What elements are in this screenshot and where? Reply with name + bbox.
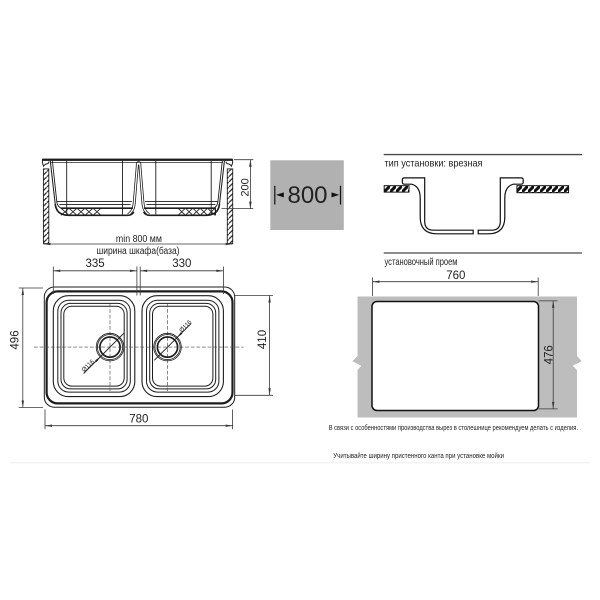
svg-text:Учитывайте ширину пристенного: Учитывайте ширину пристенного канта при … xyxy=(333,452,504,460)
svg-text:200: 200 xyxy=(239,178,251,196)
svg-text:min 800 мм: min 800 мм xyxy=(116,234,162,245)
svg-text:496: 496 xyxy=(10,330,22,349)
svg-text:410: 410 xyxy=(257,330,269,349)
svg-text:установочный проем: установочный проем xyxy=(385,256,458,268)
svg-text:800: 800 xyxy=(287,182,327,209)
svg-text:тип установки: врезная: тип установки: врезная xyxy=(385,157,483,169)
svg-text:ширина шкафа(база): ширина шкафа(база) xyxy=(97,245,180,257)
svg-text:780: 780 xyxy=(129,414,148,426)
svg-text:335: 335 xyxy=(86,258,105,270)
svg-text:330: 330 xyxy=(172,258,191,270)
svg-text:760: 760 xyxy=(446,270,465,282)
svg-text:476: 476 xyxy=(544,345,556,364)
svg-text:В связи с особенностями произв: В связи с особенностями производства выр… xyxy=(329,424,578,432)
